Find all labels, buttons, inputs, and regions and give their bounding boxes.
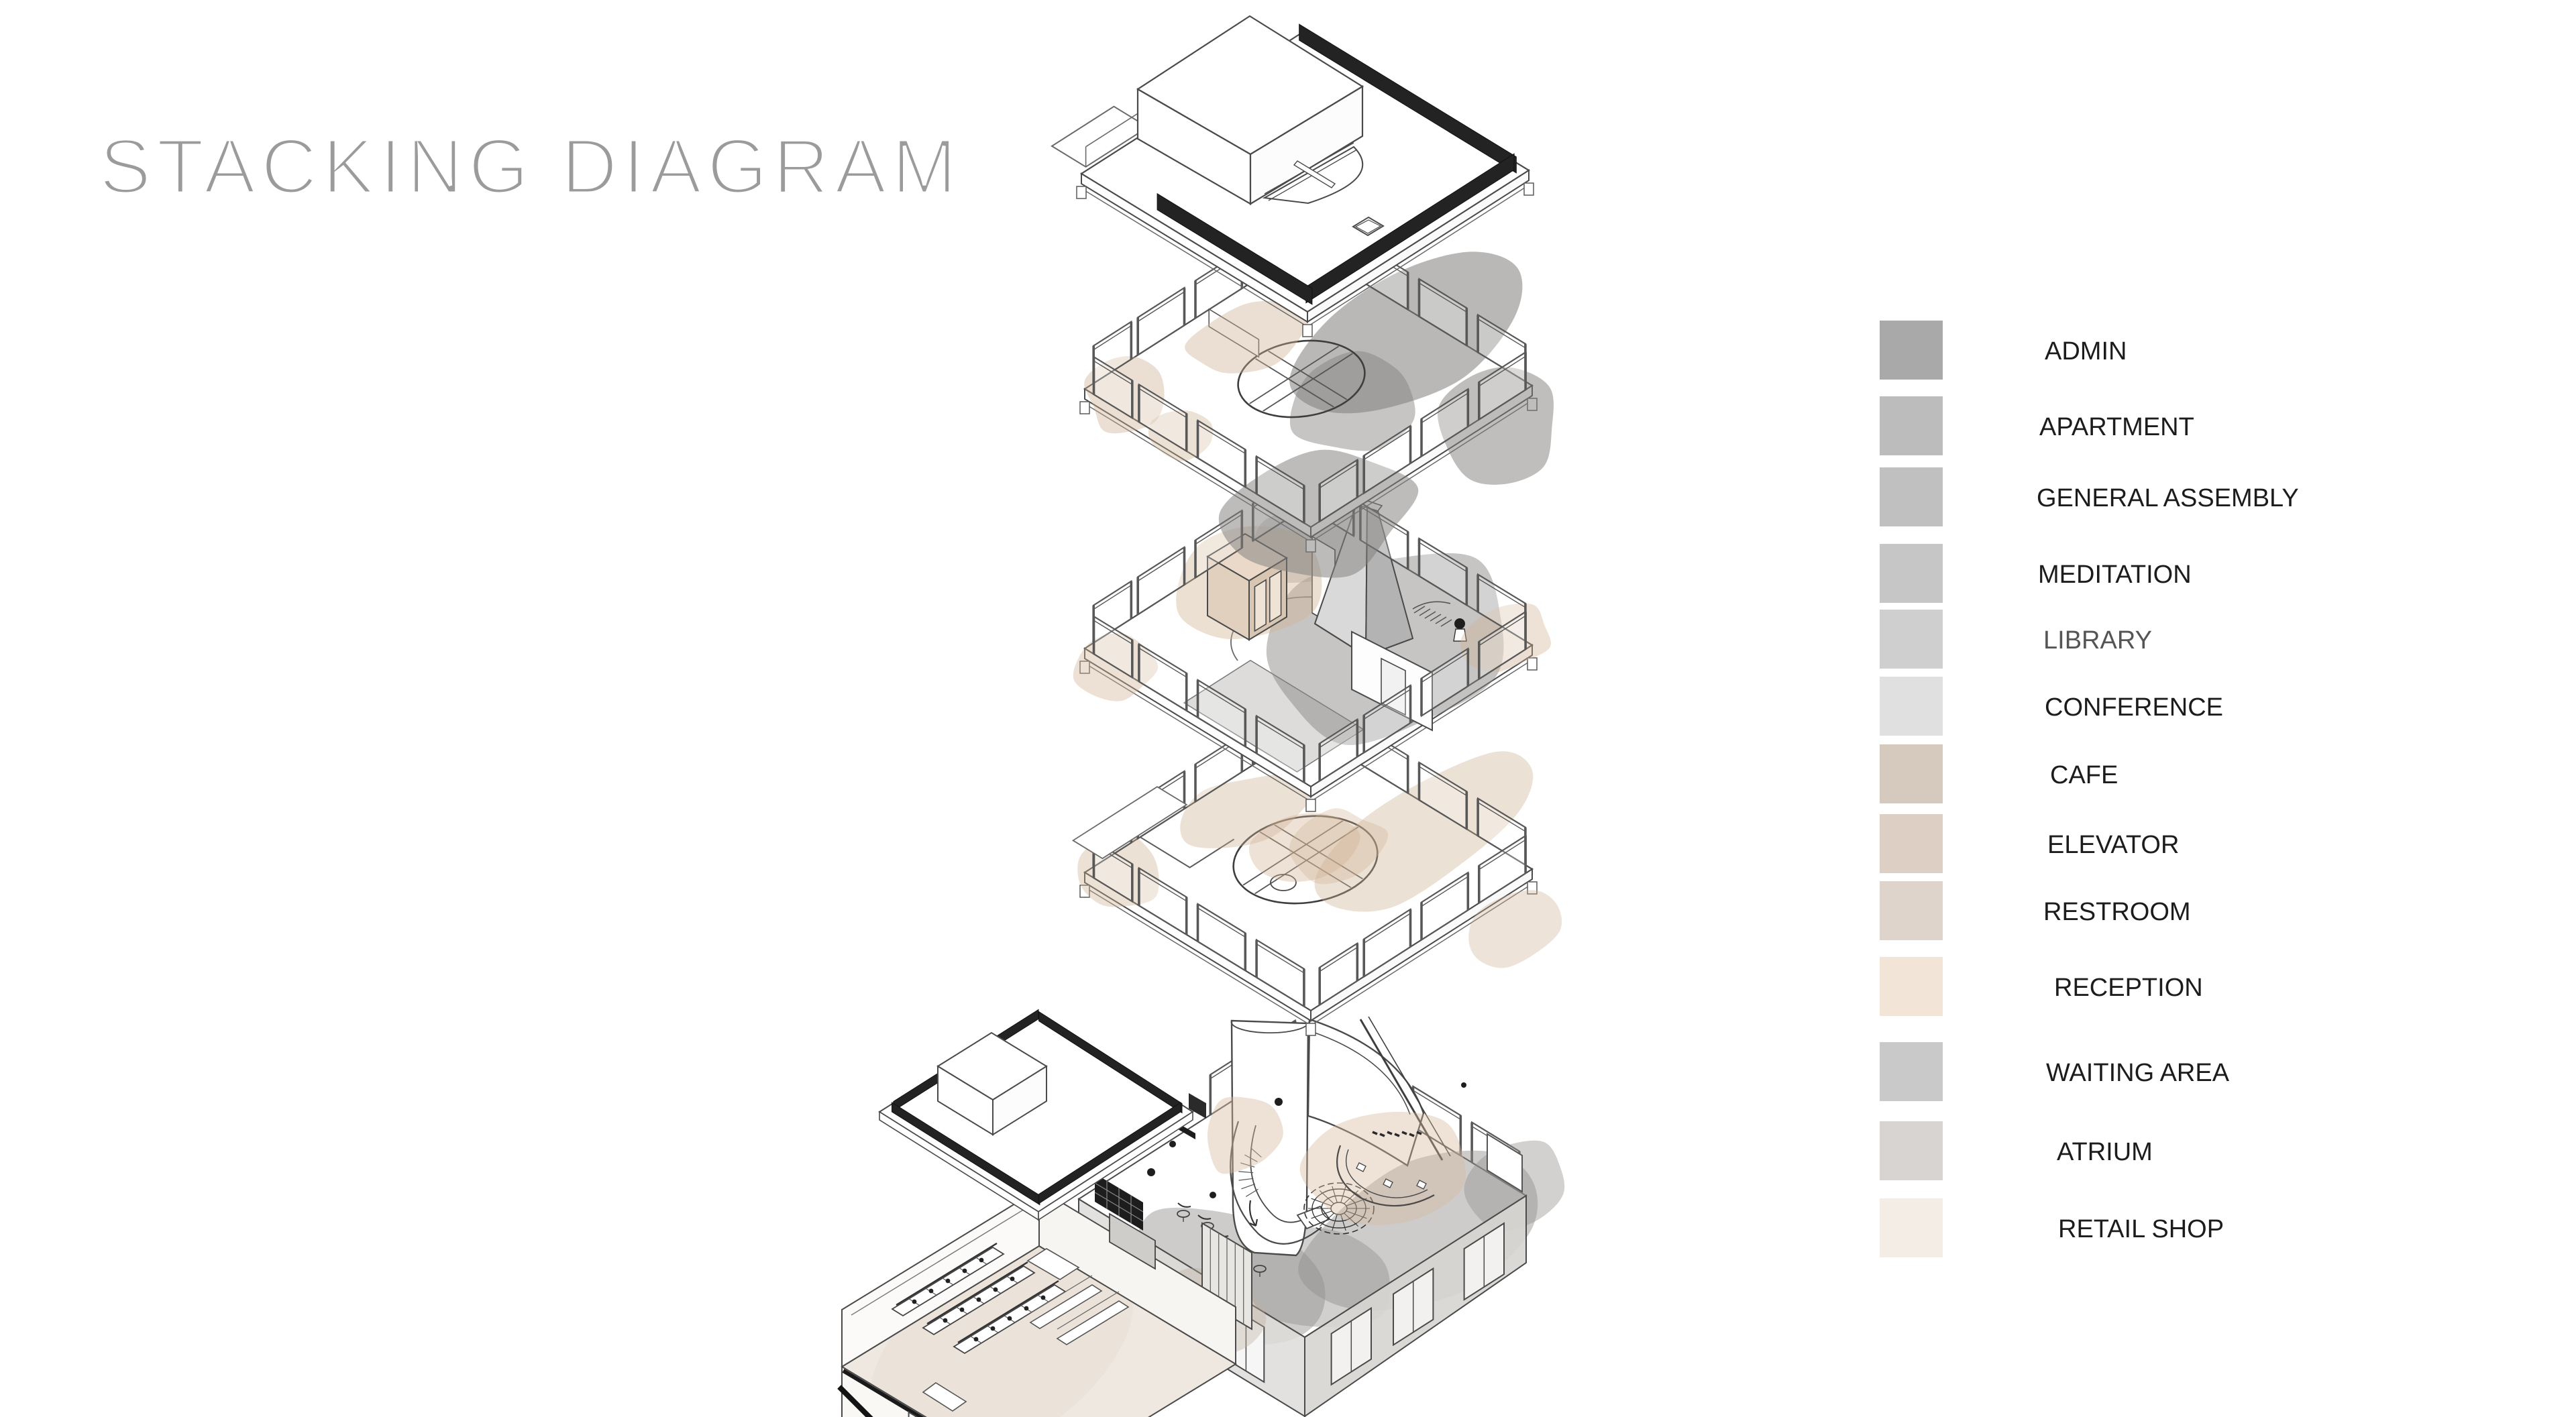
svg-text:ATRIUM: ATRIUM [2057, 1138, 2153, 1166]
svg-text:RECEPTION: RECEPTION [2054, 974, 2203, 1002]
svg-text:ADMIN: ADMIN [2045, 337, 2127, 365]
svg-text:WAITING AREA: WAITING AREA [2046, 1059, 2230, 1087]
svg-text:ELEVATOR: ELEVATOR [2047, 831, 2179, 859]
svg-text:CONFERENCE: CONFERENCE [2045, 693, 2223, 722]
svg-text:GENERAL ASSEMBLY: GENERAL ASSEMBLY [2037, 484, 2299, 512]
svg-text:CAFE: CAFE [2050, 761, 2118, 789]
svg-text:RETAIL SHOP: RETAIL SHOP [2058, 1215, 2224, 1243]
svg-text:APARTMENT: APARTMENT [2039, 413, 2194, 441]
svg-text:LIBRARY: LIBRARY [2043, 626, 2152, 655]
svg-text:STACKING DIAGRAM: STACKING DIAGRAM [99, 123, 962, 210]
svg-text:RESTROOM: RESTROOM [2043, 898, 2191, 926]
svg-text:MEDITATION: MEDITATION [2038, 561, 2192, 589]
